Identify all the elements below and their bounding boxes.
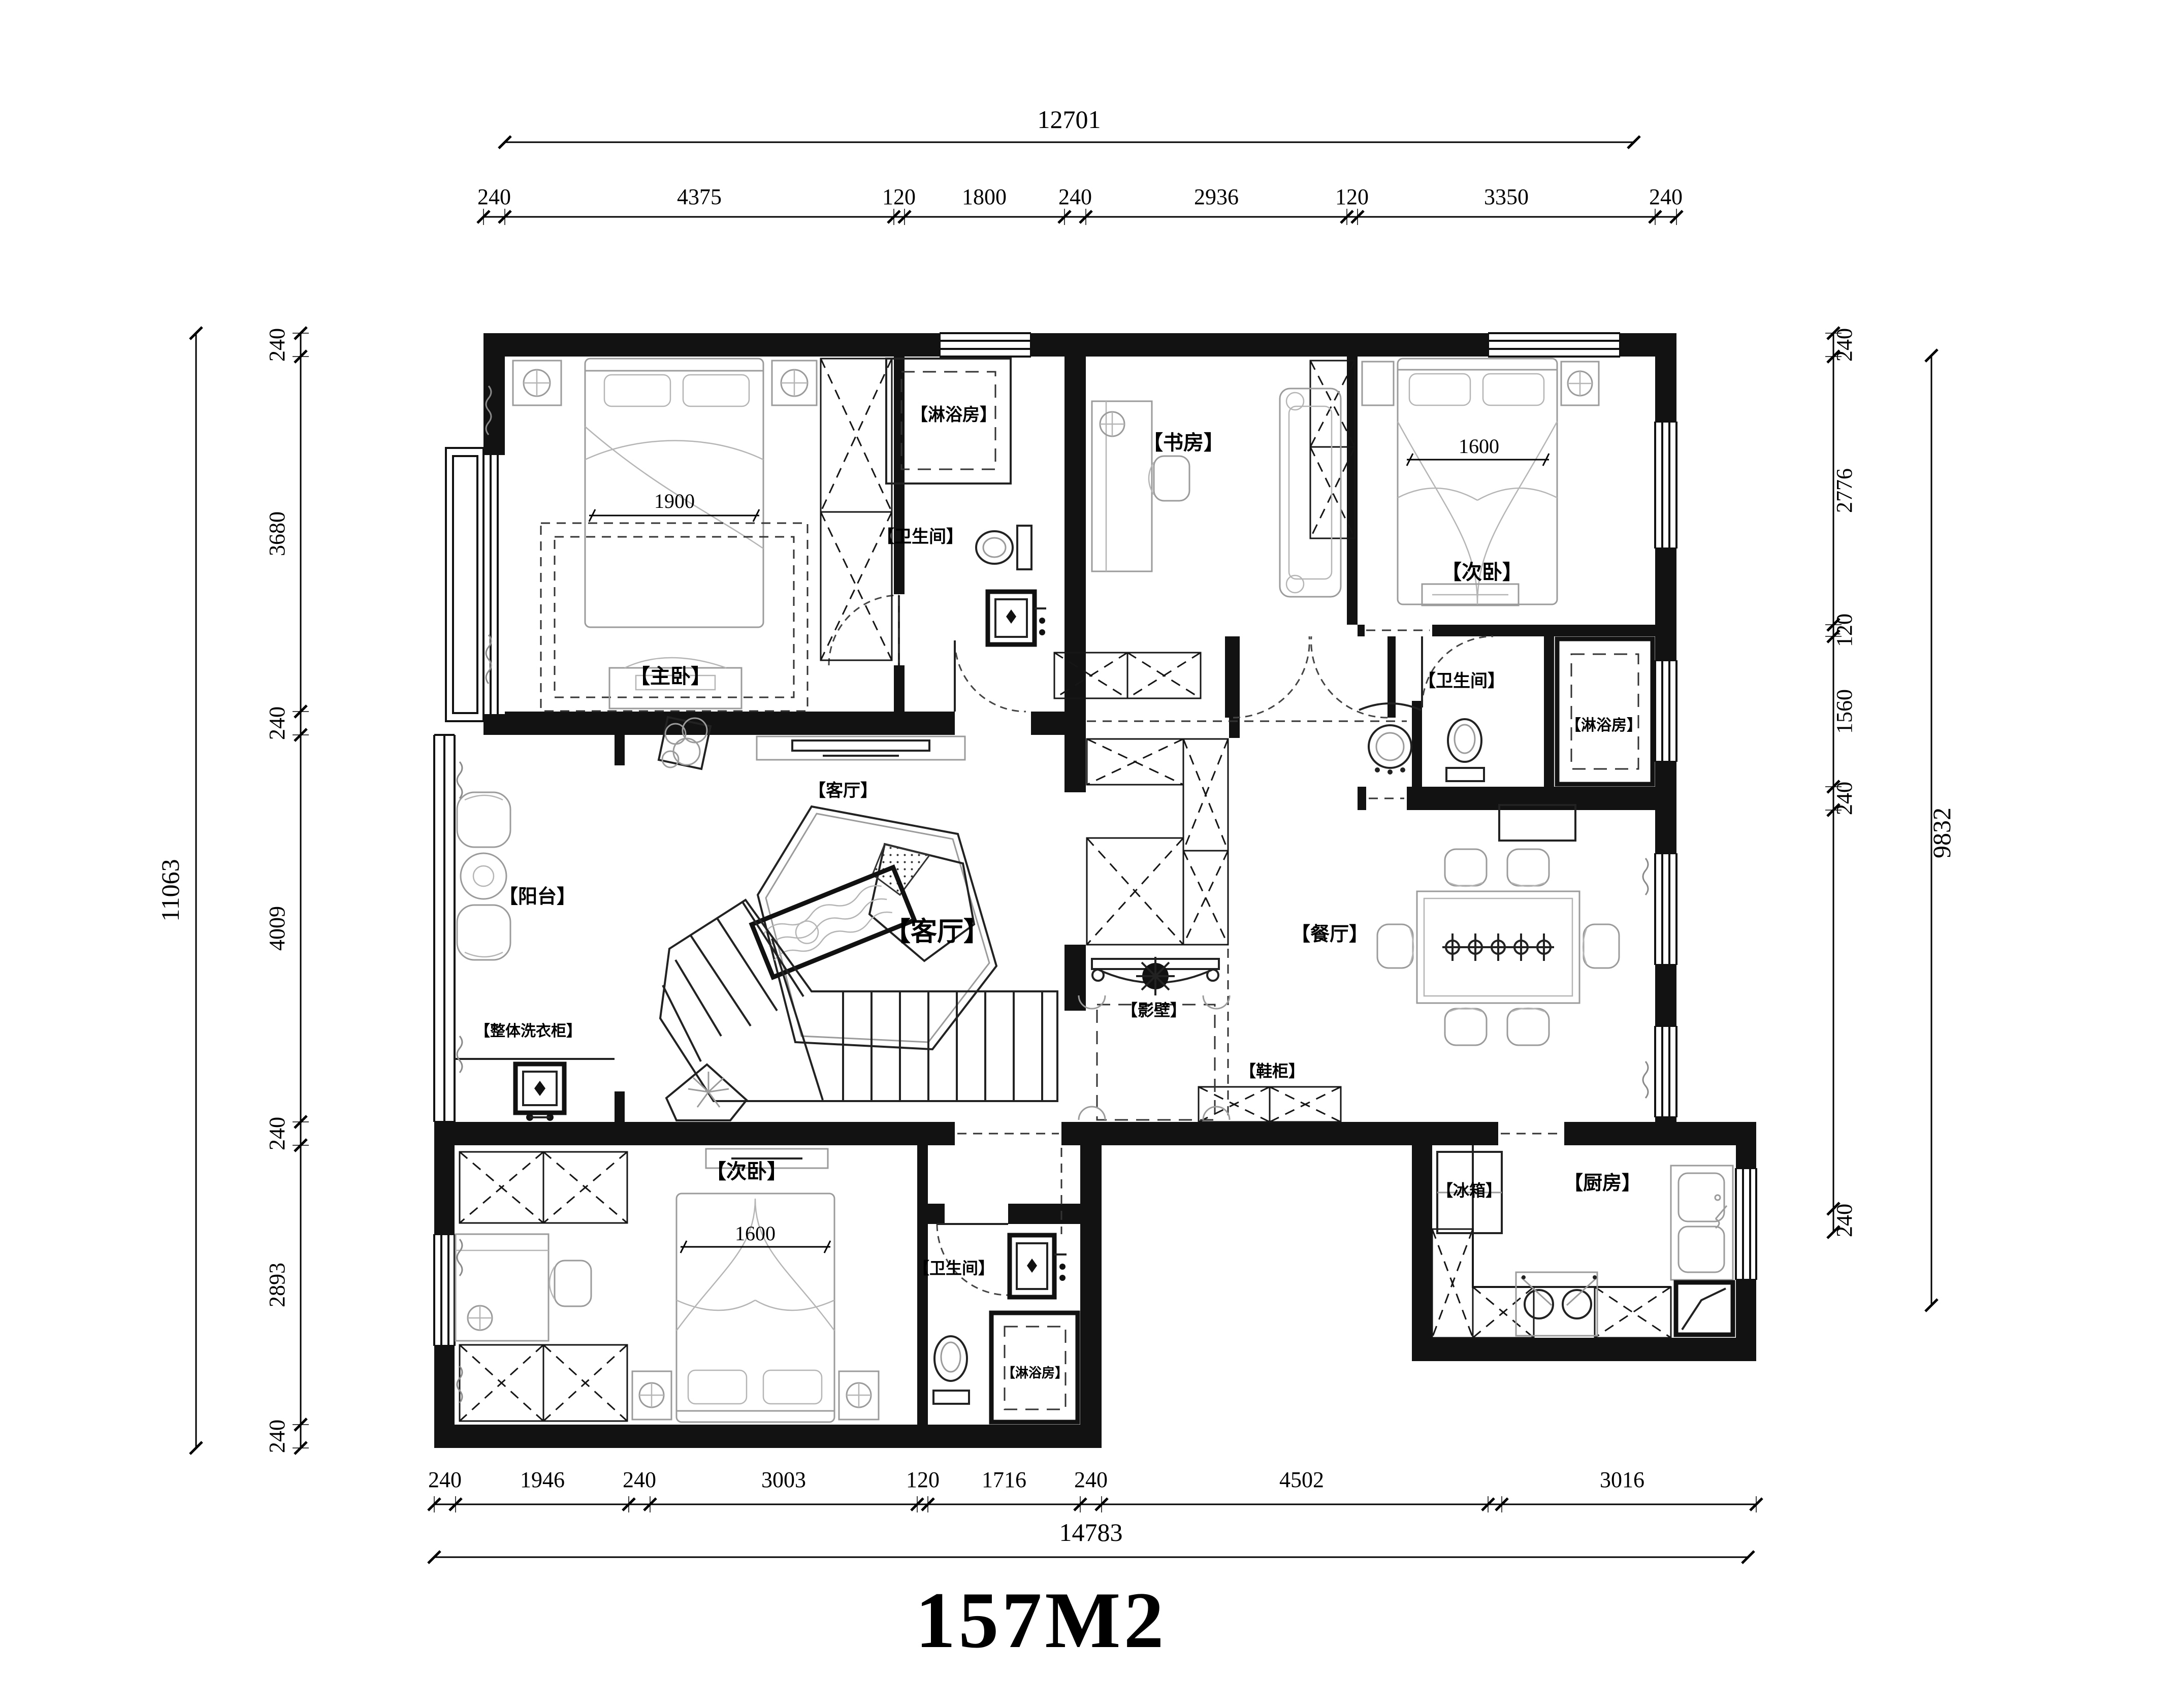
bedroom3-desk-icon <box>456 1234 591 1341</box>
room-label-balcony: 【阳台】 <box>499 886 576 908</box>
dim-label: 240 <box>265 1117 289 1150</box>
dim-label: 3680 <box>265 511 289 556</box>
room-label-bedroom-2: 【次卧】 <box>1441 561 1523 584</box>
room-label-living-room-north: 【客厅】 <box>809 781 878 800</box>
dim-label: 240 <box>1832 782 1857 815</box>
dim-label: 1716 <box>982 1467 1026 1492</box>
window-dining-2 <box>1655 1026 1676 1117</box>
room-label-bathroom-right: 【卫生间】 <box>1418 671 1505 691</box>
dim-overall-bottom: 14783 <box>1059 1518 1123 1546</box>
bedroom3-wardrobe-bottom <box>460 1345 627 1421</box>
toilet-top-icon <box>976 526 1031 569</box>
room-label-shoe-cabinet: 【鞋柜】 <box>1240 1062 1305 1080</box>
dim-label: 4375 <box>677 184 722 209</box>
living-tv-icon <box>757 736 965 760</box>
shoe-cabinet-boxes <box>1199 1087 1341 1122</box>
dim-label: 240 <box>1058 184 1092 209</box>
dim-label: 240 <box>265 1420 289 1453</box>
window-dining-1 <box>1655 853 1676 965</box>
dim-label: 240 <box>477 184 511 209</box>
dim-label: 2893 <box>265 1263 289 1307</box>
screen-wall-console <box>1092 957 1219 995</box>
door-bedroom2 <box>1311 636 1396 718</box>
dim-label: 1946 <box>520 1467 565 1492</box>
window-top-2 <box>1488 333 1620 357</box>
room-label-shower-room-bottom: 【淋浴房】 <box>1002 1365 1068 1380</box>
dim-label: 120 <box>906 1467 940 1492</box>
room-label-bathroom-bottom: 【卫生间】 <box>913 1259 994 1277</box>
dining-set-icon <box>1377 849 1619 1045</box>
bedroom3-wardrobe-top <box>460 1152 627 1223</box>
window-bedroom3-left <box>434 1234 455 1346</box>
window-shower-right <box>1655 660 1676 762</box>
washer-icon <box>455 1059 615 1121</box>
dim-label: 240 <box>265 706 289 740</box>
room-label-shower-room-top: 【淋浴房】 <box>911 405 997 425</box>
dim-label: 240 <box>623 1467 656 1492</box>
dim-label: 4009 <box>265 906 289 951</box>
dim-label: 1800 <box>962 184 1007 209</box>
stove-icon <box>1516 1272 1597 1336</box>
study-desk-icon <box>1092 401 1189 571</box>
toilet-right-icon <box>1446 719 1484 781</box>
bedroom3-bed-icon <box>632 1149 879 1422</box>
dim-overall-top: 12701 <box>1038 105 1101 134</box>
room-label-laundry-cabinet: 【整体洗衣柜】 <box>475 1023 582 1040</box>
dim-overall-left: 11063 <box>156 859 184 921</box>
dim-label: 240 <box>1832 1204 1857 1237</box>
room-label-kitchen: 【厨房】 <box>1564 1173 1641 1194</box>
dim-label: 1560 <box>1832 689 1857 734</box>
room-label-fridge: 【冰箱】 <box>1437 1181 1502 1200</box>
dim-label: 3016 <box>1600 1467 1644 1492</box>
sink-top-icon <box>988 592 1046 644</box>
living-plant2-icon <box>666 1065 747 1120</box>
dim-label: 240 <box>1074 1467 1108 1492</box>
balcony-furniture-icon <box>457 792 510 960</box>
living-plant-icon <box>659 717 711 769</box>
floor-plan: 2404375120180024029361203350240240194624… <box>0 0 2162 1705</box>
dim-label: 240 <box>428 1467 462 1492</box>
dim-label: 240 <box>1649 184 1683 209</box>
shower-room-right-box <box>1557 639 1653 784</box>
kitchen-sink-icon <box>1671 1166 1733 1280</box>
kitchen-corner-unit <box>1676 1282 1733 1335</box>
sink-bottom-icon <box>1010 1235 1067 1297</box>
room-label-shower-room-right: 【淋浴房】 <box>1566 717 1642 734</box>
room-label-screen-wall: 【影壁】 <box>1121 1001 1186 1019</box>
room-label-dining-room: 【餐厅】 <box>1291 924 1368 945</box>
dim-label: 3350 <box>1484 184 1529 209</box>
dim-label: 2776 <box>1832 468 1857 513</box>
dim-label: 120 <box>1335 184 1369 209</box>
window-bedroom2-right <box>1655 422 1676 549</box>
dim-label: 3003 <box>761 1467 806 1492</box>
dim-label: 4502 <box>1279 1467 1324 1492</box>
plan-title: 157M2 <box>915 1574 1167 1667</box>
window-balcony-left <box>434 735 455 1122</box>
room-label-bedroom-3: 【次卧】 <box>706 1161 787 1183</box>
entry-closets <box>1087 739 1228 945</box>
door-bath-top <box>955 640 1026 712</box>
inline-dim-master-bed-width: 1900 <box>654 490 695 512</box>
window-top-1 <box>940 333 1031 357</box>
master-bed-icon <box>513 359 817 711</box>
dim-label: 120 <box>882 184 916 209</box>
dim-label: 120 <box>1832 614 1857 647</box>
bay-window-master <box>446 448 505 721</box>
dim-label: 2936 <box>1194 184 1239 209</box>
dim-label: 240 <box>1832 328 1857 362</box>
dim-overall-right: 9832 <box>1927 808 1956 858</box>
toilet-bottom-icon <box>933 1336 969 1404</box>
room-label-bathroom-top: 【卫生间】 <box>877 527 963 546</box>
inline-dim-bed3-width: 1600 <box>735 1222 776 1245</box>
room-label-study: 【书房】 <box>1143 432 1224 454</box>
floor-plan-canvas: 2404375120180024029361203350240240194624… <box>0 0 2162 1705</box>
furniture-layer <box>456 359 1648 1422</box>
cabinet-below-bath <box>1499 805 1575 841</box>
room-label-master-bedroom: 【主卧】 <box>630 665 711 688</box>
window-kitchen-right <box>1736 1168 1756 1280</box>
dim-label: 240 <box>265 328 289 362</box>
inline-dim-bed2-width: 1600 <box>1459 435 1499 458</box>
master-wardrobe <box>821 359 892 660</box>
room-label-living-room: 【客厅】 <box>884 917 990 947</box>
